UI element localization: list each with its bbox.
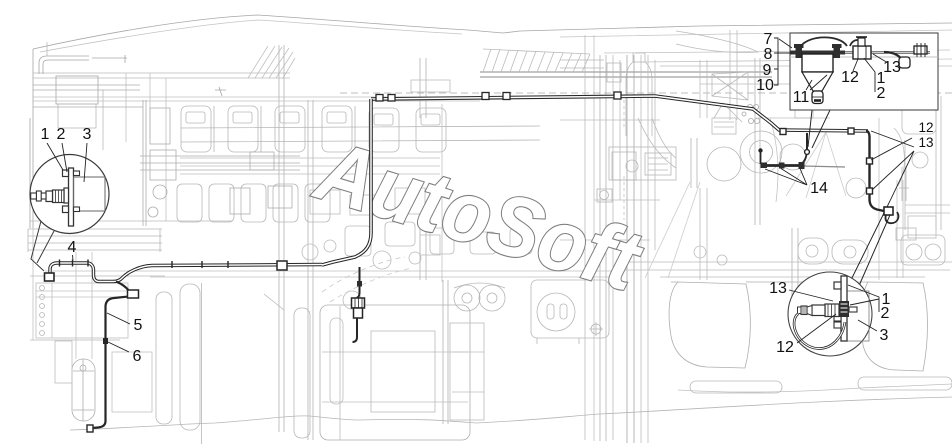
svg-text:11: 11 xyxy=(793,89,810,106)
svg-text:3: 3 xyxy=(83,126,92,143)
svg-text:12: 12 xyxy=(918,120,933,135)
svg-text:1: 1 xyxy=(41,126,50,143)
svg-text:4: 4 xyxy=(68,239,77,256)
svg-text:13: 13 xyxy=(769,280,787,297)
svg-text:2: 2 xyxy=(877,85,886,102)
svg-text:14: 14 xyxy=(810,180,828,197)
svg-text:12: 12 xyxy=(841,69,859,86)
svg-text:12: 12 xyxy=(776,339,794,356)
svg-text:3: 3 xyxy=(880,327,889,344)
svg-text:13: 13 xyxy=(918,135,933,150)
svg-text:6: 6 xyxy=(133,348,142,365)
svg-text:2: 2 xyxy=(57,126,66,143)
svg-text:10: 10 xyxy=(756,77,774,94)
svg-text:2: 2 xyxy=(881,305,890,322)
svg-text:5: 5 xyxy=(134,317,143,334)
svg-text:8: 8 xyxy=(764,46,773,63)
